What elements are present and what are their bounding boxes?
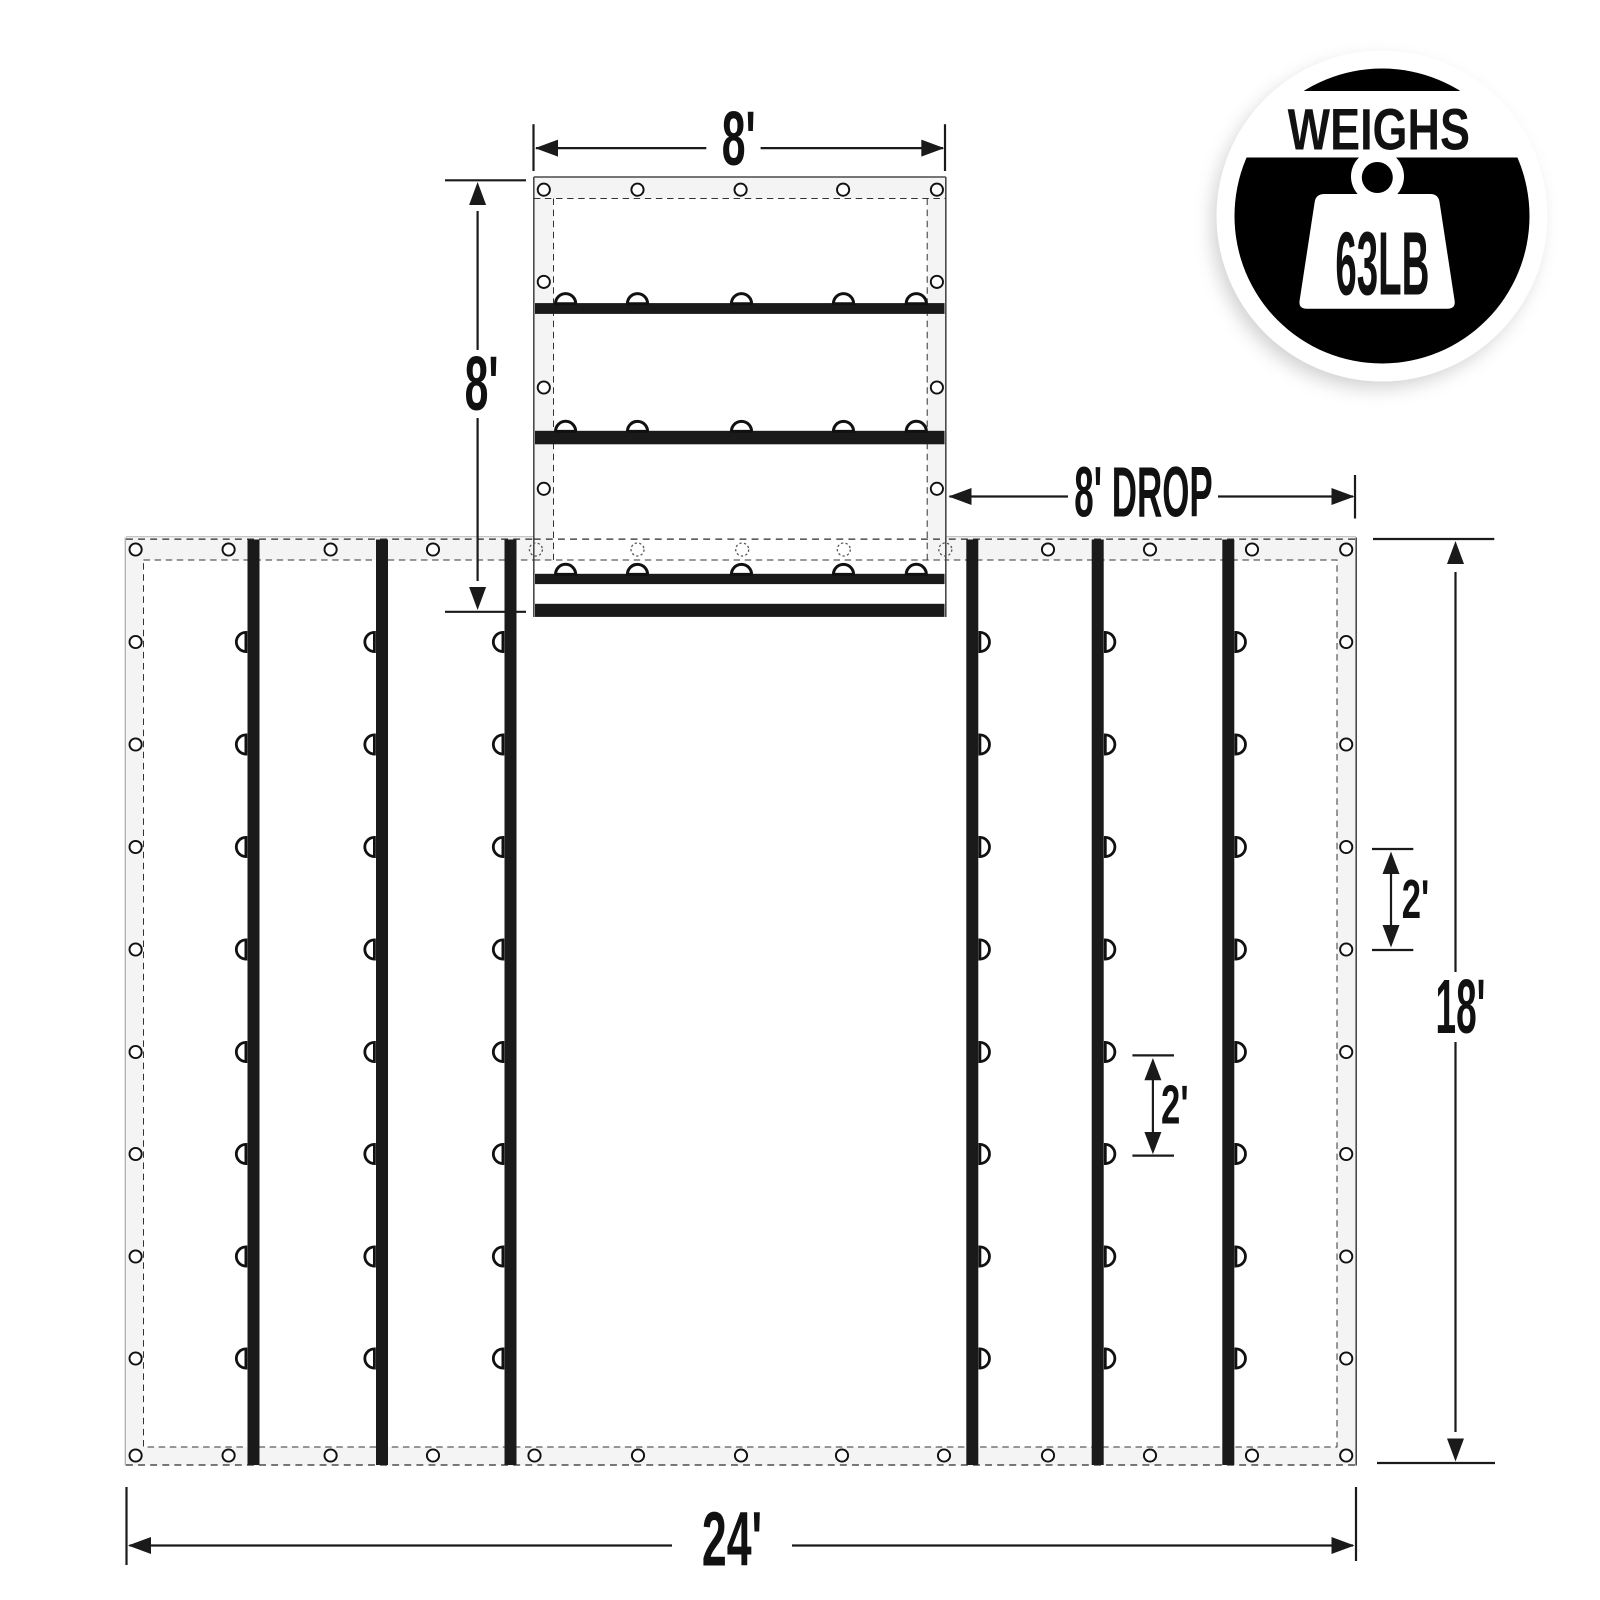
svg-text:2': 2'	[1161, 1073, 1189, 1135]
svg-text:24': 24'	[702, 1497, 762, 1583]
svg-text:18': 18'	[1436, 963, 1486, 1050]
svg-text:8' DROP: 8' DROP	[1074, 452, 1212, 532]
svg-text:63LB: 63LB	[1335, 213, 1429, 314]
svg-text:2': 2'	[1402, 868, 1430, 930]
svg-text:8': 8'	[722, 97, 756, 182]
svg-text:8': 8'	[465, 342, 499, 427]
